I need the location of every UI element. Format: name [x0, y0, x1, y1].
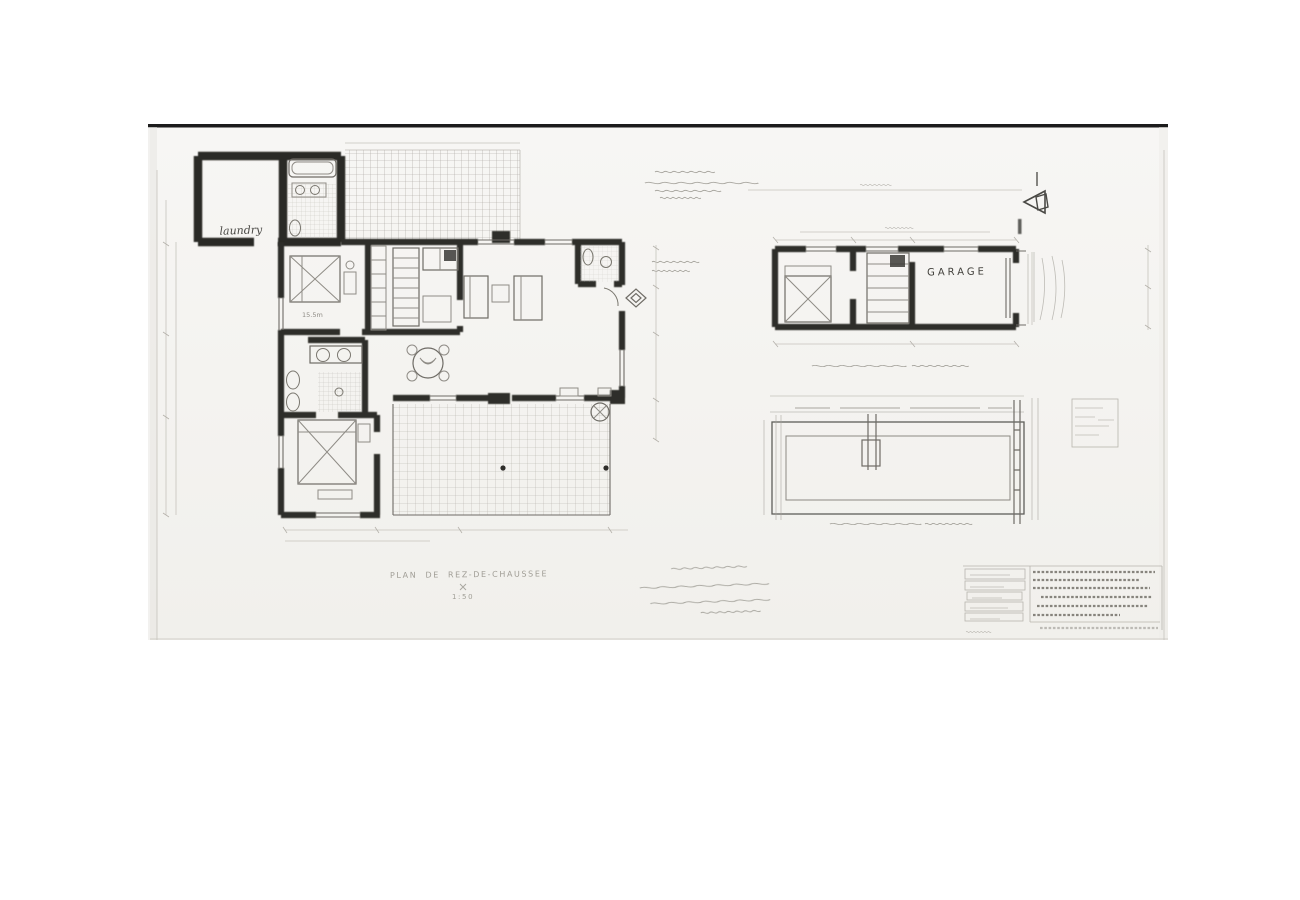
terrace-drain [500, 465, 505, 470]
terrace [393, 404, 610, 515]
floor-plan-figure: laundry 15.5m [0, 0, 1300, 900]
pergola-canopy-grid [345, 143, 520, 240]
stove [444, 250, 456, 261]
terrace-tile-grid [393, 404, 610, 515]
sheet-top-edge [148, 124, 1168, 128]
boiler [890, 255, 905, 267]
corner-pier [610, 390, 625, 404]
plan-title: PLAN DE REZ-DE-CHAUSSEE [390, 569, 548, 580]
garage-label: GARAGE [927, 266, 987, 278]
terrace-pier [488, 393, 510, 404]
bedroom-area-label: 15.5m [302, 311, 323, 319]
shower [318, 372, 361, 412]
wc [580, 246, 619, 282]
chimney [492, 231, 510, 243]
terrace-drain [603, 465, 608, 470]
laundry-label: laundry [219, 223, 263, 238]
scanned-floor-plan-page: laundry 15.5m [0, 0, 1300, 900]
plan-scale-label: 1:50 [452, 593, 474, 601]
garage-storage [867, 253, 909, 323]
